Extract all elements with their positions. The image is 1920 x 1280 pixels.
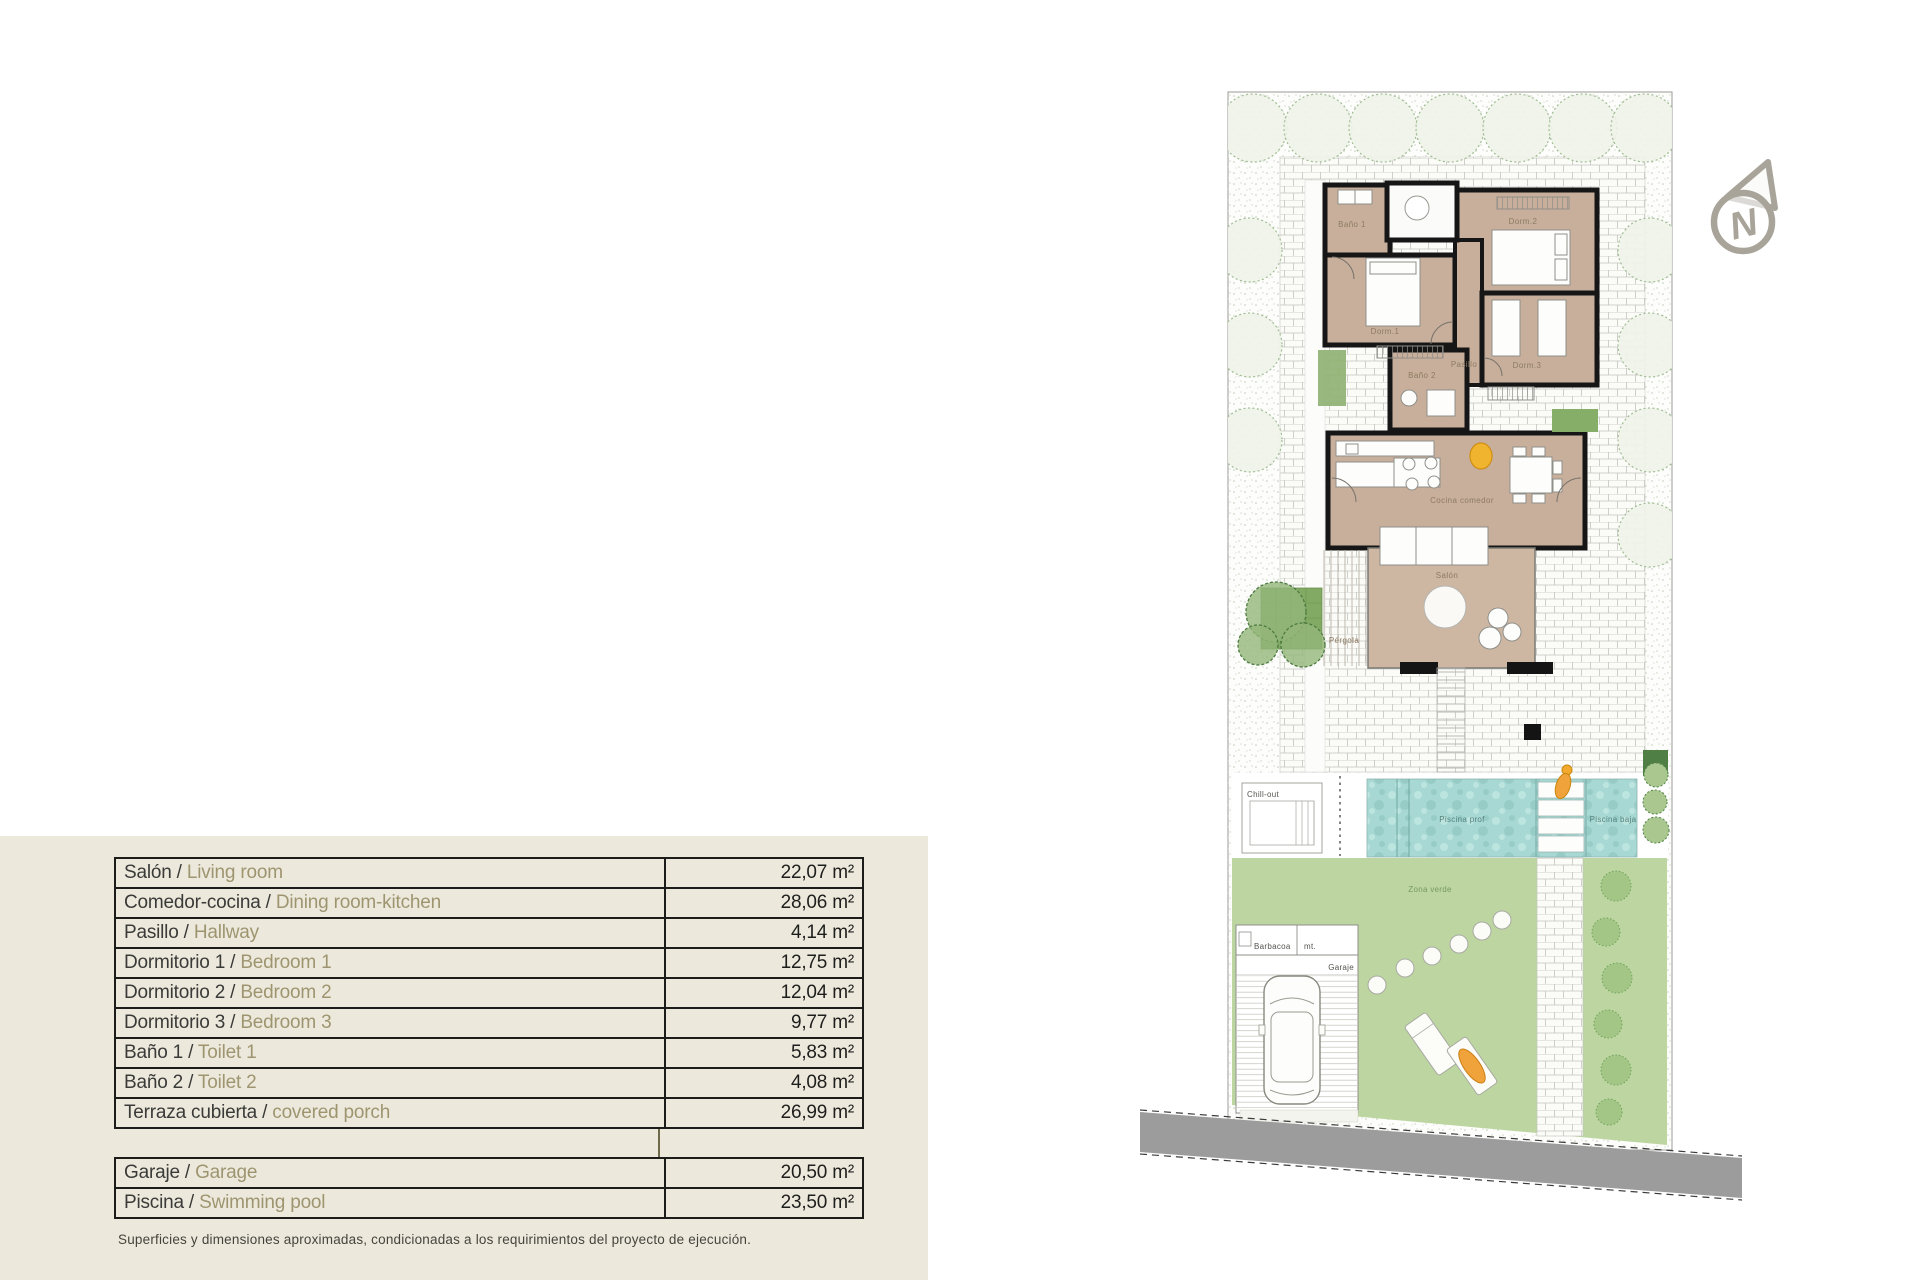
table-row: Comedor-cocina / Dining room-kitchen28,0… [115, 888, 863, 918]
garden-brick-path [1537, 858, 1583, 1136]
label-cocina: Cocina comedor [1430, 496, 1494, 505]
room-name-es: Piscina / [124, 1192, 194, 1213]
room-name-cell: Dormitorio 1 / Bedroom 1 [115, 948, 665, 978]
shrub-icon [1281, 623, 1325, 667]
table-gap-row [114, 1129, 848, 1157]
room-name-es: Comedor-cocina / [124, 892, 271, 913]
room-name-en: Bedroom 1 [235, 952, 331, 973]
table-row: Garaje / Garage20,50 m² [115, 1158, 863, 1188]
table-row: Pasillo / Hallway4,14 m² [115, 918, 863, 948]
pool-shallow-label: Piscina baja [1590, 815, 1637, 824]
tree-icon [1416, 94, 1484, 162]
room-name-en: Hallway [189, 922, 259, 943]
garage: Barbacoa mt. Garaje [1236, 925, 1358, 1122]
room-name-cell: Baño 1 / Toilet 1 [115, 1038, 665, 1068]
label-bano1: Baño 1 [1338, 220, 1366, 229]
area-value-cell: 26,99 m² [665, 1098, 863, 1128]
table-row: Terraza cubierta / covered porch26,99 m² [115, 1098, 863, 1128]
driveway-apron [1240, 1110, 1358, 1122]
north-compass-icon: N [1714, 162, 1775, 251]
site-plan-drawing: Chill-out Piscina prof Piscina baja Zona… [1100, 60, 1820, 1220]
room-name-es: Dormitorio 2 / [124, 982, 235, 1003]
barbecue-unit-label: mt. [1304, 942, 1316, 951]
footnote: Superficies y dimensiones aproximadas, c… [118, 1232, 751, 1247]
chill-out-label: Chill-out [1247, 790, 1280, 799]
room-name-es: Baño 2 / [124, 1072, 193, 1093]
barbecue-label: Barbacoa [1254, 942, 1291, 951]
room-name-en: Toilet 2 [193, 1072, 256, 1093]
table-row: Baño 2 / Toilet 24,08 m² [115, 1068, 863, 1098]
label-dorm1: Dorm.1 [1371, 327, 1400, 336]
area-value-cell: 9,77 m² [665, 1008, 863, 1038]
table-row: Dormitorio 3 / Bedroom 39,77 m² [115, 1008, 863, 1038]
area-value-cell: 5,83 m² [665, 1038, 863, 1068]
room-name-cell: Piscina / Swimming pool [115, 1188, 665, 1218]
room-name-es: Dormitorio 3 / [124, 1012, 235, 1033]
room-name-cell: Dormitorio 2 / Bedroom 2 [115, 978, 665, 1008]
areas-table: Salón / Living room22,07 m²Comedor-cocin… [114, 857, 864, 1129]
room-name-en: Living room [182, 862, 283, 883]
chill-out-area: Chill-out [1242, 783, 1322, 853]
pool: Piscina prof Piscina baja [1367, 765, 1637, 857]
room-name-cell: Baño 2 / Toilet 2 [115, 1068, 665, 1098]
room-name-es: Dormitorio 1 / [124, 952, 235, 973]
room-name-en: Swimming pool [194, 1192, 325, 1213]
room-name-cell: Comedor-cocina / Dining room-kitchen [115, 888, 665, 918]
room-name-en: Garage [190, 1162, 257, 1183]
room-name-en: Bedroom 3 [235, 1012, 331, 1033]
tree-icon [1611, 94, 1679, 162]
side-walkway [1305, 180, 1325, 772]
area-value-cell: 20,50 m² [665, 1158, 863, 1188]
room-name-en: Dining room-kitchen [271, 892, 441, 913]
area-value-cell: 28,06 m² [665, 888, 863, 918]
site-plan: Chill-out Piscina prof Piscina baja Zona… [1100, 60, 1820, 1220]
room-name-en: Toilet 1 [193, 1042, 256, 1063]
tree-icon [1349, 94, 1417, 162]
label-pasillo: Pasillo [1451, 360, 1478, 369]
label-pergola: Pérgola [1329, 636, 1360, 645]
tree-icon [1549, 94, 1617, 162]
room-name-es: Garaje / [124, 1162, 190, 1183]
label-bano2: Baño 2 [1408, 371, 1436, 380]
room-name-cell: Salón / Living room [115, 858, 665, 888]
label-dorm2: Dorm.2 [1509, 217, 1538, 226]
table-row: Baño 1 / Toilet 15,83 m² [115, 1038, 863, 1068]
room-name-es: Terraza cubierta / [124, 1102, 267, 1123]
area-value-cell: 12,75 m² [665, 948, 863, 978]
pool-deep-label: Piscina prof [1439, 815, 1485, 824]
room-name-es: Pasillo / [124, 922, 189, 943]
room-name-cell: Pasillo / Hallway [115, 918, 665, 948]
label-salon: Salón [1436, 571, 1458, 580]
table-row: Salón / Living room22,07 m² [115, 858, 863, 888]
room-name-es: Salón / [124, 862, 182, 883]
area-value-cell: 4,08 m² [665, 1068, 863, 1098]
green-zone-label: Zona verde [1408, 885, 1452, 894]
tree-icon [1219, 94, 1287, 162]
label-dorm3: Dorm.3 [1513, 361, 1542, 370]
room-name-cell: Terraza cubierta / covered porch [115, 1098, 665, 1128]
right-hedges [1643, 750, 1669, 843]
room-name-es: Baño 1 / [124, 1042, 193, 1063]
room-name-en: Bedroom 2 [235, 982, 331, 1003]
table-gap-divider [658, 1129, 660, 1157]
table-row: Dormitorio 2 / Bedroom 212,04 m² [115, 978, 863, 1008]
table-row: Piscina / Swimming pool23,50 m² [115, 1188, 863, 1218]
shrub-icon [1238, 625, 1278, 665]
room-name-cell: Dormitorio 3 / Bedroom 3 [115, 1008, 665, 1038]
plant-pot-icon [1470, 443, 1492, 469]
car-icon [1259, 976, 1325, 1104]
table-row: Dormitorio 1 / Bedroom 112,75 m² [115, 948, 863, 978]
area-value-cell: 12,04 m² [665, 978, 863, 1008]
area-value-cell: 4,14 m² [665, 918, 863, 948]
terrace-steps [1437, 668, 1465, 772]
page: { "panel": { "background": "#ece9dc" }, … [0, 0, 1920, 1280]
area-value-cell: 22,07 m² [665, 858, 863, 888]
areas-table-extra: Garaje / Garage20,50 m²Piscina / Swimmin… [114, 1157, 864, 1219]
room-name-cell: Garaje / Garage [115, 1158, 665, 1188]
tree-icon [1284, 94, 1352, 162]
area-value-cell: 23,50 m² [665, 1188, 863, 1218]
tree-icon [1483, 94, 1551, 162]
garage-label: Garaje [1328, 963, 1354, 972]
room-name-en: covered porch [267, 1102, 390, 1123]
